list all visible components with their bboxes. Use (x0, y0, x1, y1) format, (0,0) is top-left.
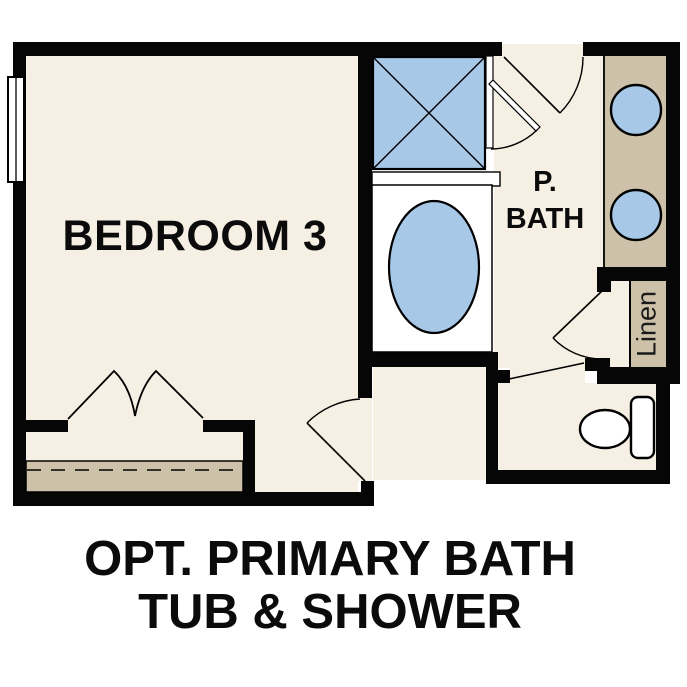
floor-plan: BEDROOM 3 P. BATH Linen OPT. PRIMARY BAT… (0, 0, 687, 687)
wall-stub-toilet-left (486, 370, 510, 383)
primary-bath-label: P. BATH (495, 164, 595, 238)
wall-right (666, 42, 680, 384)
plan-caption-line1: OPT. PRIMARY BATH (0, 533, 660, 586)
bath-entry-opening (502, 44, 583, 56)
bedroom-door-opening (358, 398, 372, 481)
wall-vanity-bottom (597, 267, 668, 281)
wall-toilet-right (656, 384, 670, 484)
wall-tub-bottom (358, 352, 498, 367)
wall-toilet-bottom (486, 470, 670, 484)
linen-entry-floor (597, 281, 630, 368)
toilet-room-floor (498, 383, 656, 470)
wall-left (13, 42, 26, 506)
hallway-floor (373, 367, 486, 480)
wall-bottom-bedroom (13, 492, 374, 506)
wall-closet-stub-left (26, 420, 68, 432)
tub-area-backing (372, 185, 492, 352)
wall-top-left (13, 42, 502, 56)
wall-toilet-left (486, 367, 498, 483)
wall-interior-vertical (358, 42, 372, 398)
primary-bath-label-line2: BATH (495, 201, 595, 238)
wall-stub-linen-top (597, 281, 611, 292)
shower-area-backing (372, 56, 494, 186)
vanity-counter (603, 56, 666, 268)
plan-caption-line2: TUB & SHOWER (0, 586, 660, 639)
plan-caption: OPT. PRIMARY BATH TUB & SHOWER (0, 533, 660, 639)
primary-bath-label-line1: P. (495, 164, 595, 201)
toilet-door-opening (510, 367, 585, 383)
bedroom-floor (26, 56, 358, 492)
wall-closet-right (243, 420, 255, 492)
bedroom-label: BEDROOM 3 (35, 212, 355, 261)
wall-stub-bedroom-door (361, 481, 374, 493)
